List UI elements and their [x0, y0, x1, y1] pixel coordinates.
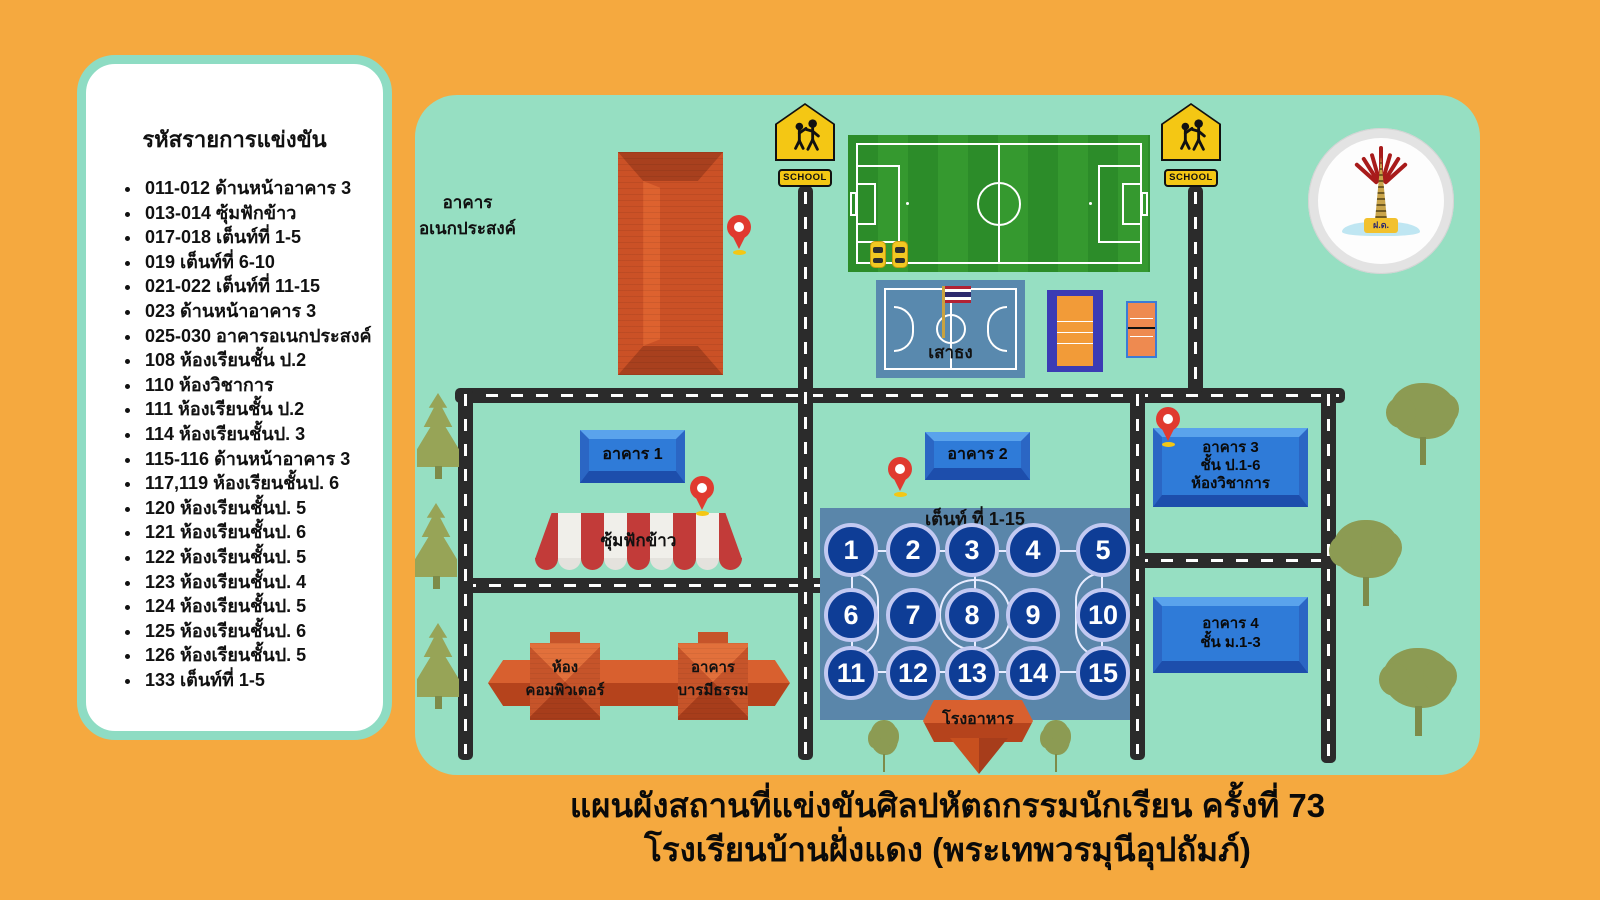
building1-sign: อาคาร 1 — [580, 430, 685, 483]
campus-map: SCHOOL SCHOOL — [415, 95, 1480, 775]
building4-label-line: ชั้น ม.1-3 — [1200, 634, 1260, 652]
tent-number-circle: 4 — [1006, 523, 1060, 577]
legend-title: รหัสรายการแข่งขัน — [86, 122, 383, 157]
penalty-dot-right — [1089, 202, 1092, 205]
label-line: อเนกประสงค์ — [415, 216, 530, 242]
scallop — [581, 558, 604, 570]
school-logo: ฝ.ด. — [1308, 128, 1454, 274]
logo-inner-circle: ฝ.ด. — [1318, 138, 1444, 264]
label-line: ห้อง — [495, 657, 635, 680]
tent-number: 1 — [843, 535, 858, 566]
pin-shadow — [1162, 442, 1175, 447]
legend-item: 117,119 ห้องเรียนชั้นป. 6 — [142, 471, 383, 496]
scallop — [719, 558, 742, 570]
road-tent-right-vertical — [1130, 388, 1145, 760]
rice-pavilion-label: ซุ้มฟักข้าว — [535, 527, 742, 554]
school-crossing-sign-right: SCHOOL — [1161, 103, 1221, 187]
map-pin-building3 — [1155, 407, 1181, 449]
road-left-vertical — [458, 388, 473, 760]
legend-list: 011-012 ด้านหน้าอาคาร 3013-014 ซุ้มฟักข้… — [86, 176, 383, 692]
tree-trunk — [1420, 437, 1427, 465]
tent-number-circle: 10 — [1076, 588, 1130, 642]
children-crossing-icon — [787, 117, 825, 155]
legend-item: 120 ห้องเรียนชั้นป. 5 — [142, 496, 383, 521]
map-pin-rice-pavilion — [689, 476, 715, 518]
volleyball-court — [1047, 290, 1103, 372]
pin-dot — [1163, 414, 1173, 424]
pine-tree — [415, 503, 457, 589]
goal-box-right — [1122, 183, 1142, 225]
road-left-horizontal — [458, 578, 828, 593]
tent-number: 6 — [843, 600, 858, 631]
tree-crown — [1333, 520, 1399, 578]
building3-label-line: อาคาร 3 — [1202, 439, 1258, 457]
tree-crown — [1383, 648, 1453, 708]
tent-number-circle: 11 — [824, 646, 878, 700]
pine-trunk — [433, 576, 440, 589]
road-middle-vertical — [798, 186, 813, 760]
pine-trunk — [435, 696, 442, 709]
cafeteria-roof-gable — [950, 738, 1008, 774]
tent-number-circle: 15 — [1076, 646, 1130, 700]
children-crossing-icon — [1173, 117, 1211, 155]
legend-item: 011-012 ด้านหน้าอาคาร 3 — [142, 176, 383, 201]
legend-item: 110 ห้องวิชาการ — [142, 373, 383, 398]
tent-number-circle: 2 — [886, 523, 940, 577]
tree — [870, 720, 898, 772]
scallop — [696, 558, 719, 570]
legend-item: 133 เต็นท์ที่ 1-5 — [142, 668, 383, 693]
tree-trunk — [1415, 706, 1422, 736]
tent-number-circle: 9 — [1006, 588, 1060, 642]
penalty-dot-left — [906, 202, 909, 205]
tent-number-circle: 6 — [824, 588, 878, 642]
legend-item: 114 ห้องเรียนชั้นป. 3 — [142, 422, 383, 447]
building2-sign: อาคาร 2 — [925, 432, 1030, 480]
car — [870, 241, 886, 268]
tent-number: 4 — [1025, 535, 1040, 566]
pin-shadow — [733, 250, 746, 255]
computer-room-label: ห้อง คอมพิวเตอร์ — [495, 657, 635, 702]
thai-flag — [945, 286, 971, 303]
school-sign-label: SCHOOL — [1164, 169, 1218, 187]
pine-crown — [417, 623, 459, 697]
legend-item: 123 ห้องเรียนชั้นป. 4 — [142, 570, 383, 595]
tent-number-circle: 13 — [945, 646, 999, 700]
goal-box-left — [856, 183, 876, 225]
building3-label-line: ห้องวิชาการ — [1191, 475, 1270, 493]
road-right-connector — [1130, 553, 1336, 568]
legend-item: 122 ห้องเรียนชั้นป. 5 — [142, 545, 383, 570]
pin-dot — [895, 464, 905, 474]
tree — [1383, 648, 1453, 736]
tree-crown — [1042, 720, 1070, 755]
futsal-court-flagpole: เสาธง — [876, 280, 1025, 378]
tent-number: 13 — [957, 658, 987, 689]
tent-number-circle: 12 — [886, 646, 940, 700]
map-title-line1: แผนผังสถานที่แข่งขันศิลปหัตถกรรมนักเรียน… — [415, 784, 1480, 828]
pine-tree — [417, 393, 459, 479]
tree-crown — [1390, 383, 1456, 439]
legend-card: รหัสรายการแข่งขัน 011-012 ด้านหน้าอาคาร … — [77, 55, 392, 740]
map-title: แผนผังสถานที่แข่งขันศิลปหัตถกรรมนักเรียน… — [415, 784, 1480, 872]
tent-number-circle: 7 — [886, 588, 940, 642]
tree-trunk — [1363, 577, 1370, 606]
tent-number-circle: 14 — [1006, 646, 1060, 700]
legend-item: 108 ห้องเรียนชั้น ป.2 — [142, 348, 383, 373]
page: { "legend": { "title": "รหัสรายการแข่งขั… — [0, 0, 1600, 900]
awning-scallops — [535, 558, 742, 570]
scallop — [650, 558, 673, 570]
tent-number: 2 — [905, 535, 920, 566]
legend-item: 025-030 อาคารอเนกประสงค์ — [142, 324, 383, 349]
map-pin-multipurpose — [726, 215, 752, 257]
tent-number: 3 — [964, 535, 979, 566]
multipurpose-building — [618, 152, 723, 375]
cafeteria-label: โรงอาหาร — [923, 707, 1033, 732]
pine-tree — [417, 623, 459, 709]
map-title-line2: โรงเรียนบ้านฝั่งแดง (พระเทพวรมุนีอุปถัมภ… — [415, 828, 1480, 872]
pine-crown — [415, 503, 457, 577]
legend-item: 017-018 เต็นท์ที่ 1-5 — [142, 225, 383, 250]
building4-sign: อาคาร 4 ชั้น ม.1-3 — [1153, 597, 1308, 673]
pine-trunk — [435, 466, 442, 479]
legend-item: 125 ห้องเรียนชั้นป. 6 — [142, 619, 383, 644]
field-center-circle — [977, 182, 1021, 226]
label-line: อาคาร — [415, 190, 530, 216]
pine-crown — [417, 393, 459, 467]
school-sign-label: SCHOOL — [778, 169, 832, 187]
tree-trunk — [1055, 754, 1058, 772]
pin-dot — [734, 222, 744, 232]
car — [892, 241, 908, 268]
school-crossing-sign-left: SCHOOL — [775, 103, 835, 187]
building1-label: อาคาร 1 — [602, 445, 662, 465]
scallop — [535, 558, 558, 570]
tree — [1390, 383, 1456, 465]
tent-number-circle: 8 — [945, 588, 999, 642]
scallop — [558, 558, 581, 570]
tent-number: 5 — [1095, 535, 1110, 566]
pin-dot — [697, 483, 707, 493]
building4-label-line: อาคาร 4 — [1202, 615, 1258, 633]
takraw-court — [1126, 301, 1157, 358]
building2-label: อาคาร 2 — [947, 445, 1007, 465]
tree — [1333, 520, 1399, 606]
rice-pavilion-awning: ซุ้มฟักข้าว — [535, 513, 742, 571]
legend-item: 023 ด้านหน้าอาคาร 3 — [142, 299, 383, 324]
legend-item: 115-116 ด้านหน้าอาคาร 3 — [142, 447, 383, 472]
tent-number: 9 — [1025, 600, 1040, 631]
tent-number-circle: 3 — [945, 523, 999, 577]
label-line: บารมีธรรม — [643, 680, 783, 703]
legend-item: 121 ห้องเรียนชั้นป. 6 — [142, 520, 383, 545]
flagpole-label: เสาธง — [876, 339, 1025, 366]
scallop — [627, 558, 650, 570]
tent-number-circle: 1 — [824, 523, 878, 577]
multipurpose-building-label: อาคาร อเนกประสงค์ — [415, 190, 530, 241]
tree-trunk — [883, 754, 886, 772]
pin-shadow — [696, 511, 709, 516]
road-main-horizontal — [455, 388, 1345, 403]
tent-number: 11 — [837, 658, 866, 689]
tent-number: 12 — [898, 658, 928, 689]
logo-monogram: ฝ.ด. — [1364, 218, 1398, 233]
tent-number: 7 — [905, 600, 920, 631]
tent-number: 15 — [1088, 658, 1118, 689]
baramitham-label: อาคาร บารมีธรรม — [643, 657, 783, 702]
tree-crown — [870, 720, 898, 755]
volleyball-court-inner — [1057, 296, 1093, 366]
goal-left — [850, 192, 857, 216]
road-right-school-vertical — [1188, 186, 1203, 393]
scallop — [604, 558, 627, 570]
label-line: คอมพิวเตอร์ — [495, 680, 635, 703]
tent-number: 10 — [1088, 600, 1118, 631]
roof-texture — [618, 152, 723, 375]
scallop — [673, 558, 696, 570]
tent-number: 14 — [1018, 658, 1048, 689]
tree — [1042, 720, 1070, 772]
map-pin-tents — [887, 457, 913, 499]
legend-item: 111 ห้องเรียนชั้น ป.2 — [142, 397, 383, 422]
goal-right — [1141, 192, 1148, 216]
legend-item: 124 ห้องเรียนชั้นป. 5 — [142, 594, 383, 619]
legend-item: 126 ห้องเรียนชั้นป. 5 — [142, 643, 383, 668]
tent-number: 8 — [964, 600, 979, 631]
legend-item: 021-022 เต็นท์ที่ 11-15 — [142, 274, 383, 299]
legend-item: 013-014 ซุ้มฟักข้าว — [142, 201, 383, 226]
label-line: อาคาร — [643, 657, 783, 680]
tent-number-circle: 5 — [1076, 523, 1130, 577]
building3-label-line: ชั้น ป.1-6 — [1201, 457, 1261, 475]
legend-item: 019 เต็นท์ที่ 6-10 — [142, 250, 383, 275]
pin-shadow — [894, 492, 907, 497]
